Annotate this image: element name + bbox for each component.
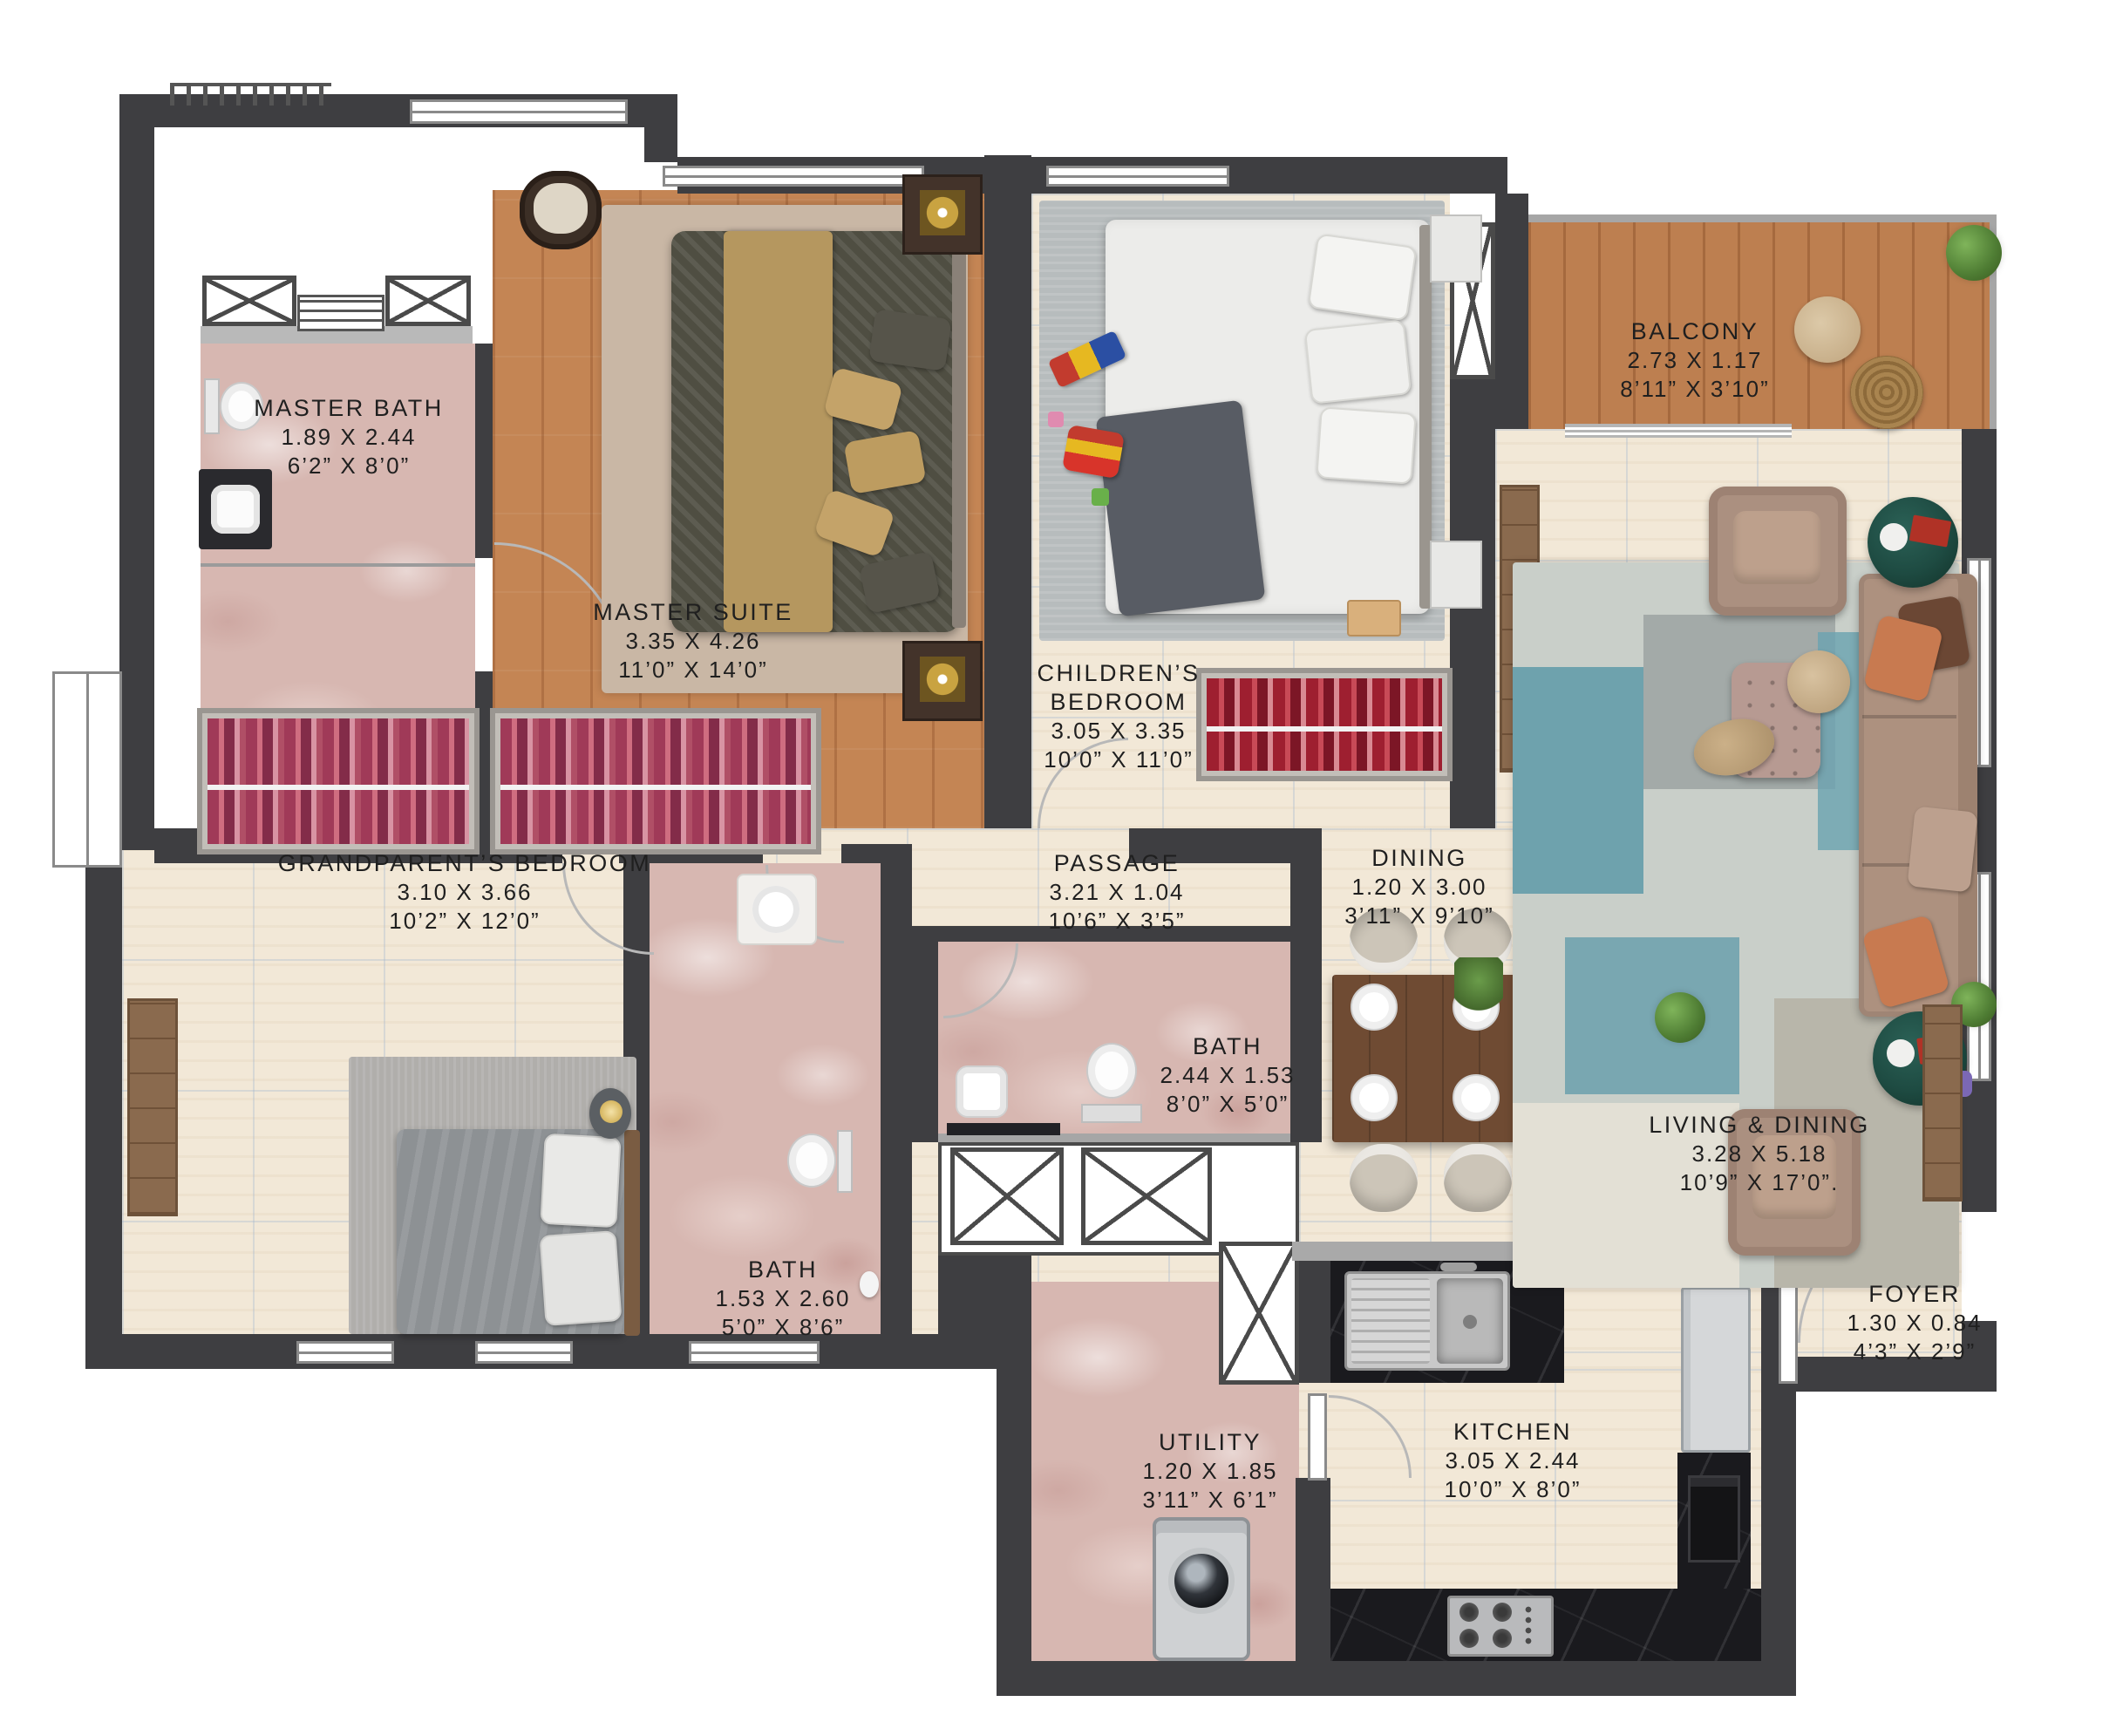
window-grandparent-2 — [475, 1341, 573, 1364]
armchair-top-cushion — [1733, 511, 1820, 584]
master-bed-headboard — [952, 237, 966, 628]
parapet-hatch — [170, 83, 331, 106]
room-dim-ft: 11’0” X 14’0” — [593, 656, 793, 684]
stove-burner-3 — [1459, 1629, 1479, 1648]
green-table-top-tray — [1880, 523, 1908, 551]
room-label-childrens-bedroom: CHILDREN’S BEDROOM 3.05 X 3.35 10’0” X 1… — [1001, 659, 1236, 774]
rug-patch-teal-3 — [1565, 937, 1739, 1094]
green-table-bottom-tray — [1887, 1039, 1915, 1067]
room-name: BALCONY — [1620, 317, 1770, 346]
washing-machine-drum — [1168, 1548, 1235, 1614]
window-grandparent-1 — [296, 1341, 394, 1364]
bath2-toilet-tank — [1081, 1104, 1142, 1123]
toy-plane — [1062, 425, 1125, 479]
dressing-wardrobe — [202, 713, 474, 849]
bath2-sink-slab — [947, 1123, 1060, 1135]
shaft-x-1 — [950, 1147, 1064, 1245]
kitchen-faucet — [1440, 1263, 1477, 1271]
room-name: PASSAGE — [1049, 849, 1186, 878]
bath1-sink — [752, 886, 799, 933]
grandparent-pillow-2 — [539, 1230, 622, 1326]
shaft-x-2 — [1081, 1147, 1212, 1245]
stove-knobs — [1524, 1604, 1533, 1646]
master-lamp-1 — [920, 190, 965, 235]
grandparent-pillow-1 — [540, 1134, 621, 1228]
window-left-dressing — [52, 671, 122, 868]
grandparent-wall-lamp-bulb — [600, 1100, 623, 1123]
room-label-kitchen: KITCHEN 3.05 X 2.44 10’0” X 8’0” — [1445, 1418, 1582, 1504]
room-dim-ft: 3’11” X 6’1” — [1142, 1486, 1277, 1515]
wall-mbath-divider-a — [475, 344, 493, 558]
entrance-door-leaf — [1779, 1275, 1798, 1384]
room-dim-m: 3.21 X 1.04 — [1049, 878, 1186, 907]
room-dim-m: 1.53 X 2.60 — [716, 1284, 851, 1313]
room-dim-m: 2.44 X 1.53 — [1160, 1061, 1296, 1090]
mbath-shower-divider — [201, 563, 475, 567]
room-dim-m: 3.05 X 3.35 — [1001, 717, 1236, 745]
room-label-bath-2: BATH 2.44 X 1.53 8’0” X 5’0” — [1160, 1032, 1296, 1119]
bath2-toilet-bowl — [1086, 1043, 1137, 1099]
wall-balcony-left — [1495, 194, 1528, 429]
children-wardrobe — [1201, 673, 1447, 776]
wall-left-lower — [85, 850, 122, 1369]
balcony-rail-top — [1528, 214, 1997, 222]
room-dim-m: 3.10 X 3.66 — [278, 878, 652, 907]
children-pillow-3 — [1316, 406, 1416, 484]
balcony-sliding-door — [1565, 424, 1792, 438]
wall-utility-left — [997, 1369, 1031, 1696]
room-dim-ft: 5’0” X 8’6” — [716, 1313, 851, 1342]
mbath-toilet-tank — [204, 378, 220, 434]
room-name: MASTER BATH — [254, 394, 444, 423]
wall-bath1-right — [881, 844, 912, 1369]
toy-block-1 — [1092, 488, 1109, 506]
master-chair-cushion — [534, 183, 588, 234]
balcony-plant — [1946, 225, 2002, 281]
room-name: BATH — [716, 1256, 851, 1284]
room-label-living-dining: LIVING & DINING 3.28 X 5.18 10’9” X 17’0… — [1649, 1111, 1870, 1197]
utility-door-leaf — [1308, 1393, 1327, 1481]
children-nightstand-1 — [1430, 214, 1482, 283]
room-name: DINING — [1344, 844, 1494, 873]
dining-chair-bottom-2 — [1444, 1144, 1512, 1212]
toy-puzzle — [1347, 600, 1401, 637]
room-dim-ft: 8’0” X 5’0” — [1160, 1090, 1296, 1119]
room-label-master-bath: MASTER BATH 1.89 X 2.44 6’2” X 8’0” — [254, 394, 444, 480]
floor-plan: MASTER BATH 1.89 X 2.44 6’2” X 8’0” MAST… — [0, 0, 2116, 1736]
room-label-bath-1: BATH 1.53 X 2.60 5’0” X 8’6” — [716, 1256, 851, 1342]
balcony-table-rattan — [1850, 356, 1923, 429]
room-dim-m: 1.89 X 2.44 — [254, 423, 444, 452]
wall-kitchen-bottom — [1031, 1661, 1796, 1696]
wall-left-upper — [119, 94, 154, 850]
foyer-cabinet — [1922, 1004, 1963, 1202]
room-name: UTILITY — [1142, 1428, 1277, 1457]
room-name: GRANDPARENT’S BEDROOM — [278, 849, 652, 878]
mbath-x-window-2 — [385, 276, 471, 326]
room-label-dining: DINING 1.20 X 3.00 3’11” X 9’10” — [1344, 844, 1494, 930]
room-dim-m: 3.05 X 2.44 — [1445, 1447, 1582, 1475]
rug-patch-teal-1 — [1513, 667, 1643, 894]
kitchen-fridge — [1681, 1287, 1751, 1453]
mbath-louver-window — [297, 295, 384, 331]
wall-kitchen-right — [1761, 1357, 1796, 1696]
room-label-foyer: FOYER 1.30 X 0.84 4’3” X 2’9” — [1847, 1280, 1983, 1366]
dining-plate-4 — [1351, 1074, 1398, 1121]
room-name: LIVING & DINING — [1649, 1111, 1870, 1140]
room-dim-ft: 3’11” X 9’10” — [1344, 902, 1494, 930]
room-dim-m: 2.73 X 1.17 — [1620, 346, 1770, 375]
dining-plate-5 — [1453, 1074, 1500, 1121]
room-dim-ft: 10’9” X 17’0”. — [1649, 1168, 1870, 1197]
wall-kitchen-left-b — [1296, 1478, 1330, 1661]
room-dim-m: 3.35 X 4.26 — [593, 627, 793, 656]
window-bath1 — [689, 1341, 820, 1364]
master-lamp-2 — [920, 657, 965, 702]
mbath-x-window-1 — [202, 276, 296, 326]
room-dim-ft: 4’3” X 2’9” — [1847, 1338, 1983, 1366]
children-bed-blanket — [1096, 400, 1266, 617]
room-dim-m: 1.30 X 0.84 — [1847, 1309, 1983, 1338]
room-dim-ft: 10’0” X 8’0” — [1445, 1475, 1582, 1504]
room-name: FOYER — [1847, 1280, 1983, 1309]
room-label-master-suite: MASTER SUITE 3.35 X 4.26 11’0” X 14’0” — [593, 598, 793, 684]
master-bed-throw — [724, 231, 833, 632]
kitchen-sink-drainboard — [1351, 1278, 1430, 1364]
master-wardrobe — [495, 713, 816, 849]
toy-block-2 — [1048, 412, 1064, 427]
room-name: BATH — [1160, 1032, 1296, 1061]
side-table-marble-1 — [1787, 650, 1850, 713]
stove-burner-1 — [1459, 1603, 1479, 1622]
wall-bath1-top-b — [841, 844, 881, 863]
dining-chair-bottom-1 — [1350, 1144, 1418, 1212]
kitchen-oven — [1688, 1475, 1740, 1562]
bath1-toilet-tank — [837, 1130, 853, 1193]
dining-centerpiece-plant — [1454, 957, 1503, 1015]
room-name: KITCHEN — [1445, 1418, 1582, 1447]
room-label-grandparents-bedroom: GRANDPARENT’S BEDROOM 3.10 X 3.66 10’2” … — [278, 849, 652, 936]
grandparent-headboard — [624, 1130, 640, 1336]
children-pillow-1 — [1308, 233, 1418, 321]
room-label-passage: PASSAGE 3.21 X 1.04 10’6” X 3’5” — [1049, 849, 1186, 936]
grandparent-wardrobe — [127, 998, 178, 1216]
stove-burner-4 — [1493, 1629, 1512, 1648]
wall-top-step — [644, 96, 677, 162]
balcony-table-stone — [1794, 296, 1861, 363]
sofa-seat-divider-1 — [1862, 715, 1956, 718]
room-dim-ft: 10’2” X 12’0” — [278, 907, 652, 936]
bath1-toilet-bowl — [787, 1134, 836, 1188]
room-name: MASTER SUITE — [593, 598, 793, 627]
bath2-sink — [956, 1065, 1008, 1118]
room-dim-m: 1.20 X 3.00 — [1344, 873, 1494, 902]
wall-mbath-divider-b — [475, 671, 493, 849]
room-label-utility: UTILITY 1.20 X 1.85 3’11” X 6’1” — [1142, 1428, 1277, 1515]
window-master-top — [410, 99, 628, 124]
children-pillow-2 — [1304, 319, 1412, 405]
wall-kitchen-left-a — [1296, 1242, 1330, 1383]
mbath-sink — [211, 485, 260, 534]
stove-burner-2 — [1493, 1603, 1512, 1622]
room-label-balcony: BALCONY 2.73 X 1.17 8’11” X 3’10” — [1620, 317, 1770, 404]
window-children-top — [1046, 166, 1229, 187]
wall-shaft-fill — [938, 1256, 1031, 1369]
children-nightstand-2 — [1430, 541, 1482, 609]
bath1-paper-holder — [860, 1271, 879, 1297]
room-name: CHILDREN’S BEDROOM — [1001, 659, 1236, 717]
plant-living-1 — [1655, 992, 1705, 1043]
window-suite-top — [663, 166, 924, 187]
room-dim-ft: 10’0” X 11’0” — [1001, 745, 1236, 774]
master-bed-pillow-4 — [868, 309, 951, 371]
room-dim-ft: 10’6” X 3’5” — [1049, 907, 1186, 936]
shaft-x-kitchen — [1219, 1242, 1299, 1385]
sofa-pillow-tan — [1907, 806, 1977, 892]
wall-bath2-left — [912, 926, 938, 1142]
kitchen-sink-drain — [1463, 1315, 1477, 1329]
room-dim-ft: 8’11” X 3’10” — [1620, 375, 1770, 404]
room-dim-m: 1.20 X 1.85 — [1142, 1457, 1277, 1486]
room-dim-ft: 6’2” X 8’0” — [254, 452, 444, 480]
dining-plate-1 — [1351, 984, 1398, 1031]
room-dim-m: 3.28 X 5.18 — [1649, 1140, 1870, 1168]
